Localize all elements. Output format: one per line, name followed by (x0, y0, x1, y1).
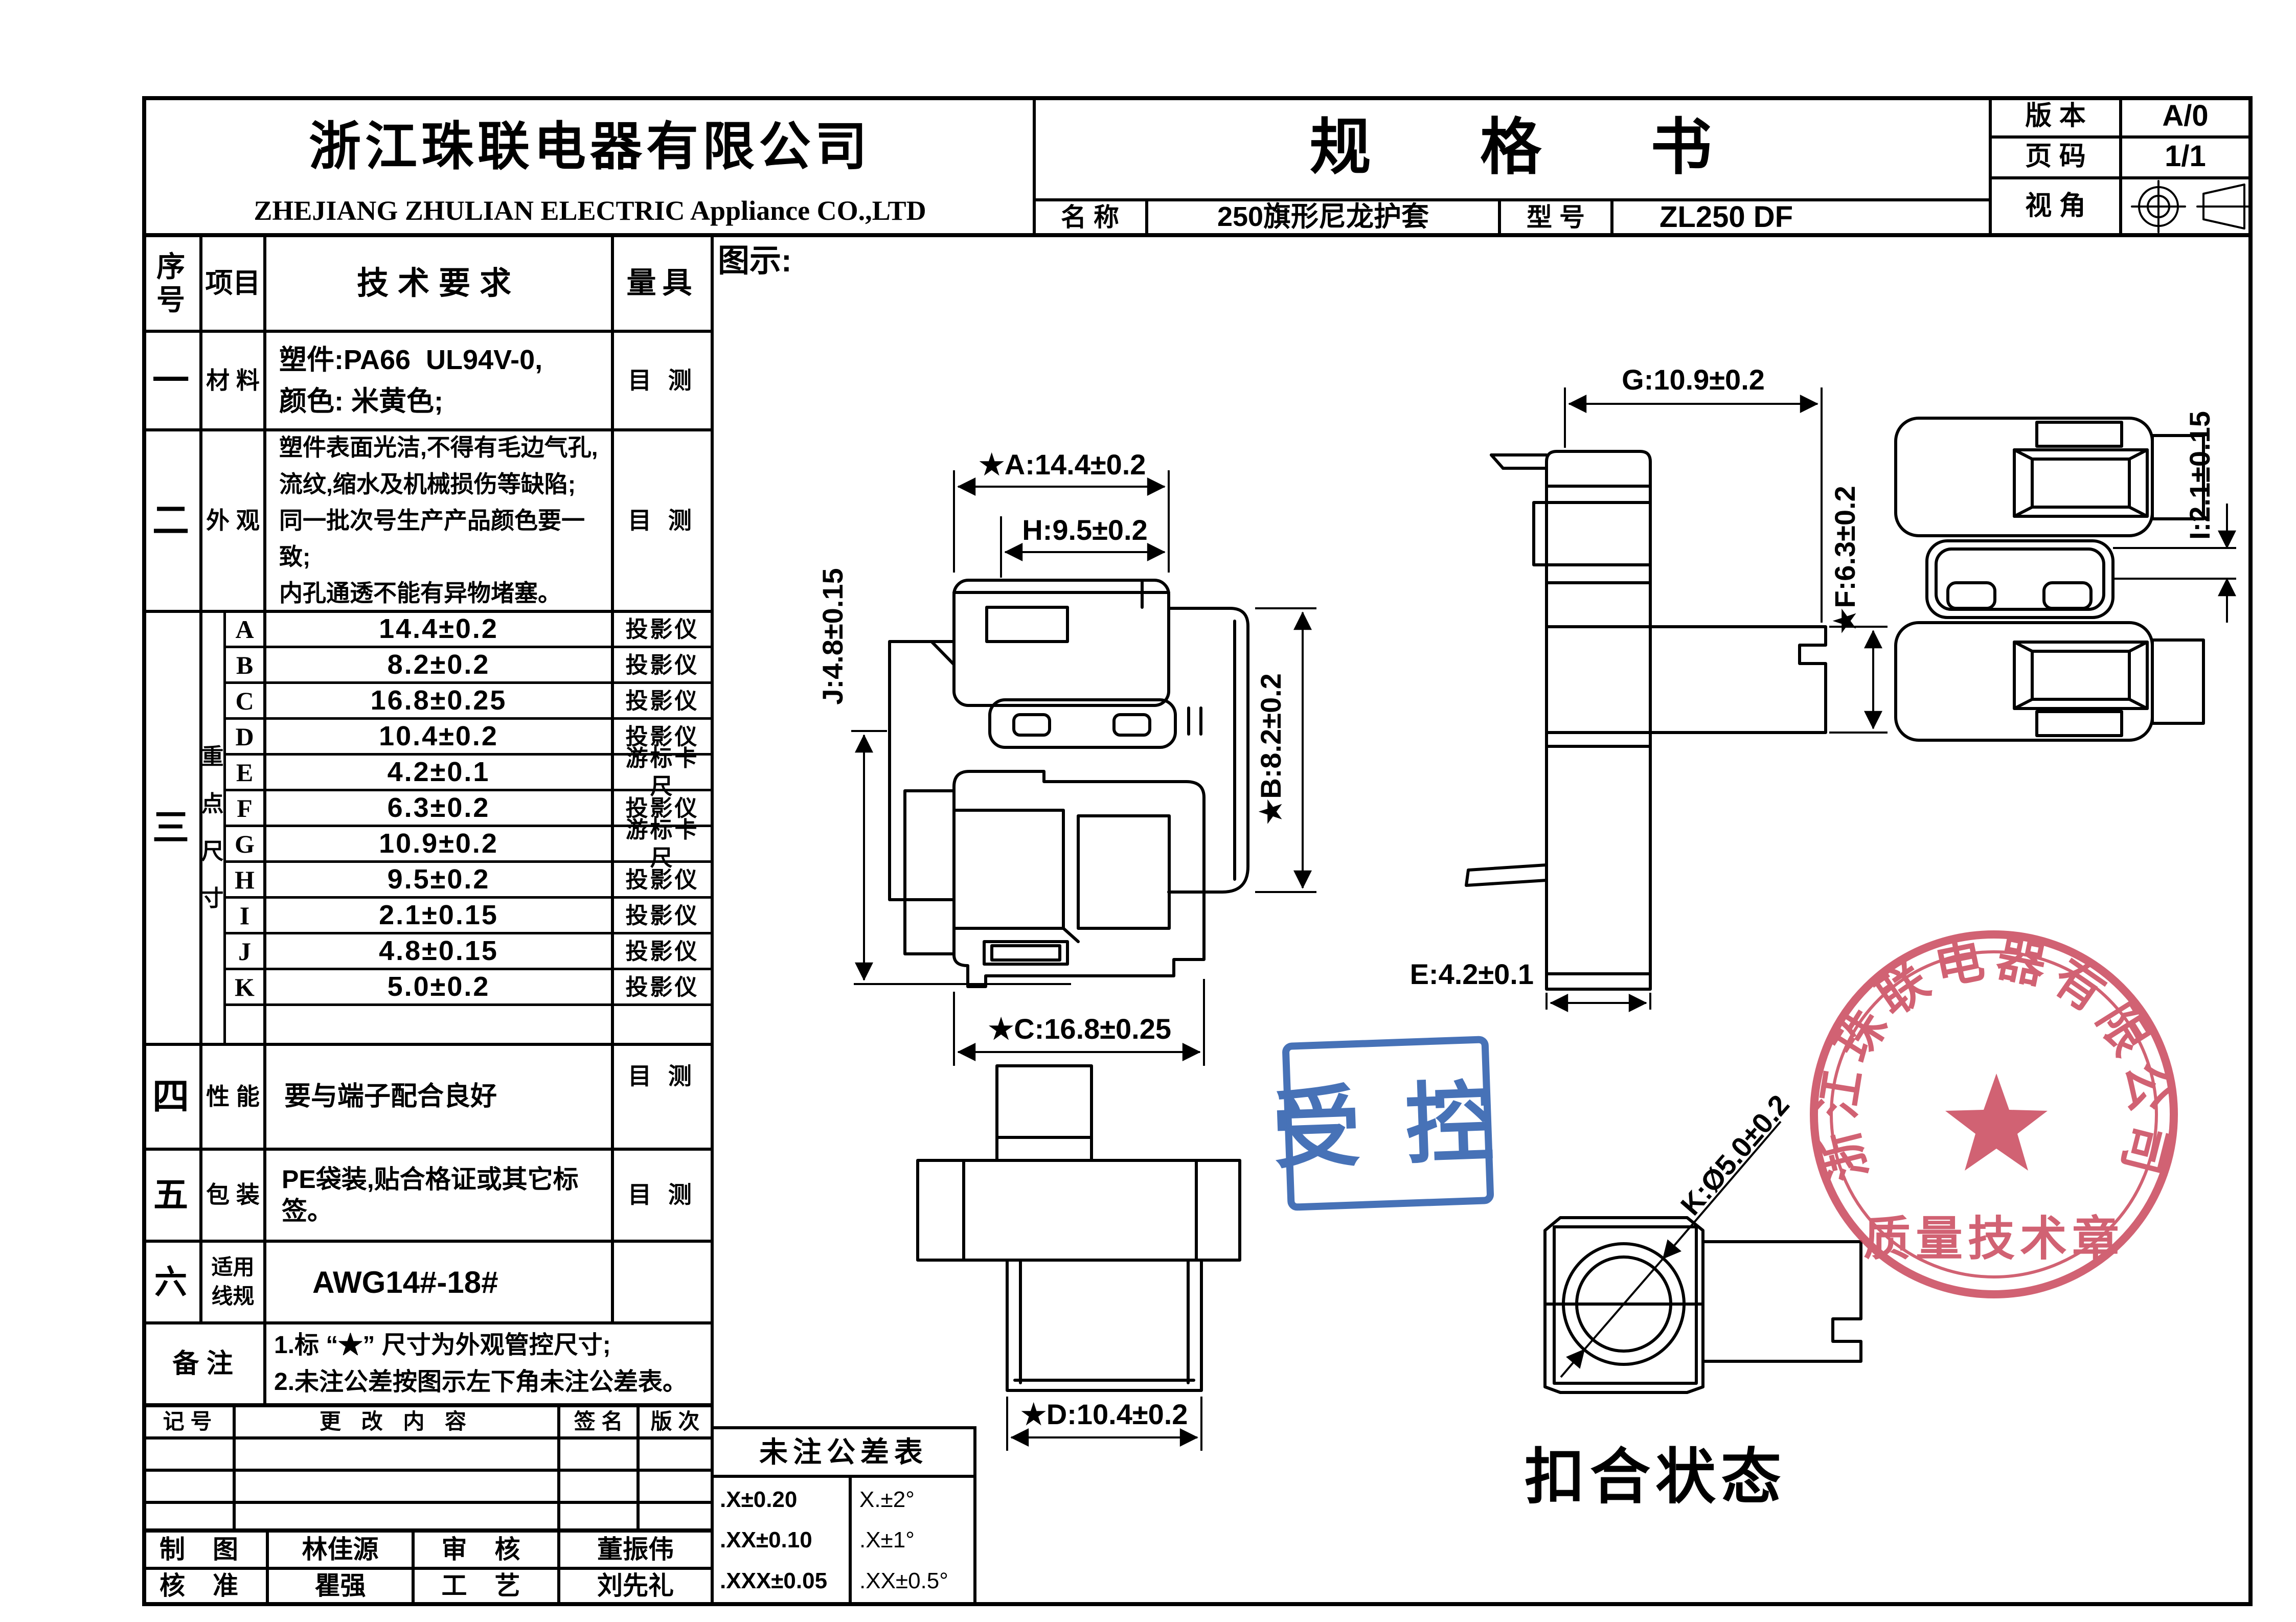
quality-stamp: 浙江珠联电器有限公司 质量技术章 (1810, 931, 2177, 1294)
right-view: I:2.1±0.15 (1896, 411, 2236, 740)
grid-line (973, 1426, 976, 1605)
dim-value: 4.8±0.15 (266, 935, 611, 968)
row1-req: 塑件:PA66 UL94V-0, 颜色: 米黄色; (266, 333, 611, 428)
revision-col-sign: 签 名 (560, 1407, 636, 1436)
revision-col-rev: 版 次 (640, 1407, 711, 1436)
dim-letter: H (226, 863, 263, 896)
dim-label-c: ★C:16.8±0.25 (988, 1013, 1171, 1045)
company-name: 浙江珠联电器有限公司 (147, 105, 1033, 189)
row1-item: 材 料 (202, 333, 263, 428)
grid-line (142, 1602, 2253, 1606)
dim-value: 10.4±0.2 (266, 720, 611, 753)
dim-gauge: 投影仪 (614, 935, 711, 968)
part-name-value: 250旗形尼龙护套 (1148, 200, 1498, 234)
dim-letter: I (226, 899, 263, 932)
model-value: ZL250 DF (1613, 200, 1989, 234)
dim-value: 2.1±0.15 (266, 899, 611, 932)
signature-process-name: 刘先礼 (560, 1570, 711, 1602)
spec-col-gauge: 量具 (614, 237, 711, 330)
mated-view: K:Ø5.0±0.2 扣合状态 (1525, 1088, 1861, 1511)
doc-title: 规 格 书 (1033, 100, 1989, 194)
tolerance-angular: X.±2° .X±1° .XX±0.5° (852, 1478, 973, 1603)
dim-value: 5.0±0.2 (266, 971, 611, 1003)
dim-gauge: 游标卡尺 (614, 828, 711, 860)
dim-value: 6.3±0.2 (266, 792, 611, 825)
dim-letter: B (226, 649, 263, 681)
signature-draw-name: 林佳源 (269, 1533, 412, 1567)
dim-label-f: ★F:6.3±0.2 (1829, 486, 1861, 634)
row2-item: 外 观 (202, 431, 263, 610)
row1-no: 一 (142, 333, 199, 428)
grid-line (142, 1528, 714, 1533)
dim-label-g: G:10.9±0.2 (1622, 363, 1765, 396)
side-view: G:10.9±0.2 ★F:6.3±0.2 E:4.2±0.1 (1410, 363, 1888, 1010)
row5-item: 包 装 (202, 1151, 263, 1240)
dim-value: 4.2±0.1 (266, 756, 611, 789)
signature-process-label: 工 艺 (415, 1570, 557, 1602)
grid-line (142, 1403, 714, 1407)
bottom-view: ★D:10.4±0.2 (918, 1066, 1240, 1451)
tolerance-linear: .X±0.20 .XX±0.10 .XXX±0.05 (714, 1478, 849, 1603)
tolerance-title: 未注公差表 (714, 1429, 973, 1475)
row1-gauge: 目 测 (614, 333, 711, 428)
row5-req: PE袋装,贴合格证或其它标签。 (266, 1151, 611, 1240)
dim-label-k: K:Ø5.0±0.2 (1674, 1088, 1795, 1221)
row4-req: 要与端子配合良好 (266, 1046, 611, 1148)
part-name-label: 名 称 (1035, 200, 1145, 234)
dim-gauge: 投影仪 (614, 649, 711, 681)
dim-label-i: I:2.1±0.15 (2184, 411, 2216, 540)
front-view: ★A:14.4±0.2 H:9.5±0.2 ★B:8.2±0.2 J:4.8±0… (816, 448, 1316, 1066)
dim-gauge: 投影仪 (614, 684, 711, 717)
grid-line (142, 1469, 714, 1472)
quality-stamp-bottom-text: 质量技术章 (1863, 1213, 2124, 1265)
spec-col-item: 项目 (202, 237, 263, 330)
projection-symbol-icon (2132, 181, 2252, 232)
row3-no: 三 (142, 613, 199, 1043)
dim-value: 9.5±0.2 (266, 863, 611, 896)
dim-label-j: J:4.8±0.15 (816, 568, 849, 704)
dim-letter: C (226, 684, 263, 717)
spec-sheet-page: { "header": { "company_cn": "浙江珠联电器有限公司"… (0, 0, 2296, 1622)
dim-letter: E (226, 756, 263, 789)
row2-no: 二 (142, 431, 199, 610)
signature-draw-label: 制 图 (142, 1533, 266, 1567)
company-name-en: ZHEJIANG ZHULIAN ELECTRIC Appliance CO.,… (147, 192, 1033, 230)
row2-gauge: 目 测 (614, 431, 711, 610)
controlled-stamp-text: 受 控 (1271, 1073, 1505, 1179)
row6-no: 六 (142, 1243, 199, 1321)
dim-gauge: 投影仪 (614, 863, 711, 896)
remark-label: 备 注 (142, 1324, 263, 1403)
dim-value: 8.2±0.2 (266, 649, 611, 681)
signature-check-name: 董振伟 (560, 1533, 711, 1567)
row3-group: 重 点 尺 寸 (200, 613, 224, 1043)
row6-req: AWG14#-18# (266, 1243, 611, 1321)
page-value: 1/1 (2122, 137, 2248, 176)
dim-letter: D (226, 720, 263, 753)
grid-line (223, 1003, 711, 1006)
dim-letter: K (226, 971, 263, 1003)
dim-label-d: ★D:10.4±0.2 (1021, 1398, 1188, 1430)
dim-label-a: ★A:14.4±0.2 (979, 448, 1146, 481)
row5-gauge: 目 测 (614, 1151, 711, 1240)
dim-value: 14.4±0.2 (266, 613, 611, 646)
dim-value: 16.8±0.25 (266, 684, 611, 717)
signature-approve-label: 核 准 (142, 1570, 266, 1602)
dim-value: 10.9±0.2 (266, 828, 611, 860)
remark-text: 1.标 “★” 尺寸为外观管控尺寸; 2.未注公差按图示左下角未注公差表。 (266, 1324, 711, 1403)
grid-line (142, 1501, 714, 1504)
page-label: 页 码 (1992, 137, 2119, 176)
dim-letter: G (226, 828, 263, 860)
spec-col-no: 序 号 (142, 237, 199, 330)
version-label: 版 本 (1992, 97, 2119, 135)
dim-gauge: 投影仪 (614, 899, 711, 932)
dim-letter: A (226, 613, 263, 646)
grid-line (711, 235, 714, 1605)
dim-label-b: ★B:8.2±0.2 (1255, 673, 1287, 825)
revision-col-mark: 记 号 (142, 1407, 233, 1436)
star-icon (1945, 1073, 2048, 1171)
signature-approve-name: 瞿强 (269, 1570, 412, 1602)
model-label: 型 号 (1501, 200, 1610, 234)
grid-line (2248, 96, 2253, 1606)
mated-caption: 扣合状态 (1525, 1444, 1786, 1511)
row5-no: 五 (142, 1151, 199, 1240)
dim-gauge: 投影仪 (614, 971, 711, 1003)
row4-no: 四 (142, 1046, 199, 1148)
dim-gauge: 游标卡尺 (614, 756, 711, 789)
drawing-label: 图示: (718, 239, 886, 283)
version-value: A/0 (2122, 97, 2248, 135)
dim-letter: F (226, 792, 263, 825)
controlled-stamp: 受 控 (1270, 1039, 1507, 1208)
signature-check-label: 审 核 (415, 1533, 557, 1567)
row6-item: 适用 线规 (202, 1243, 263, 1321)
dim-gauge: 投影仪 (614, 613, 711, 646)
row4-gauge: 目 测 (614, 1046, 711, 1107)
dim-label-h: H:9.5±0.2 (1022, 514, 1148, 546)
view-angle-label: 视 角 (1992, 178, 2119, 234)
dim-label-e: E:4.2±0.1 (1410, 958, 1534, 990)
grid-line (142, 1436, 714, 1440)
row4-item: 性 能 (202, 1046, 263, 1148)
revision-col-content: 更 改 内 容 (236, 1407, 557, 1436)
dim-letter: J (226, 935, 263, 968)
spec-col-req: 技术要求 (266, 237, 611, 330)
row2-req: 塑件表面光洁,不得有毛边气孔, 流纹,缩水及机械损伤等缺陷; 同一批次号生产产品… (266, 431, 611, 610)
